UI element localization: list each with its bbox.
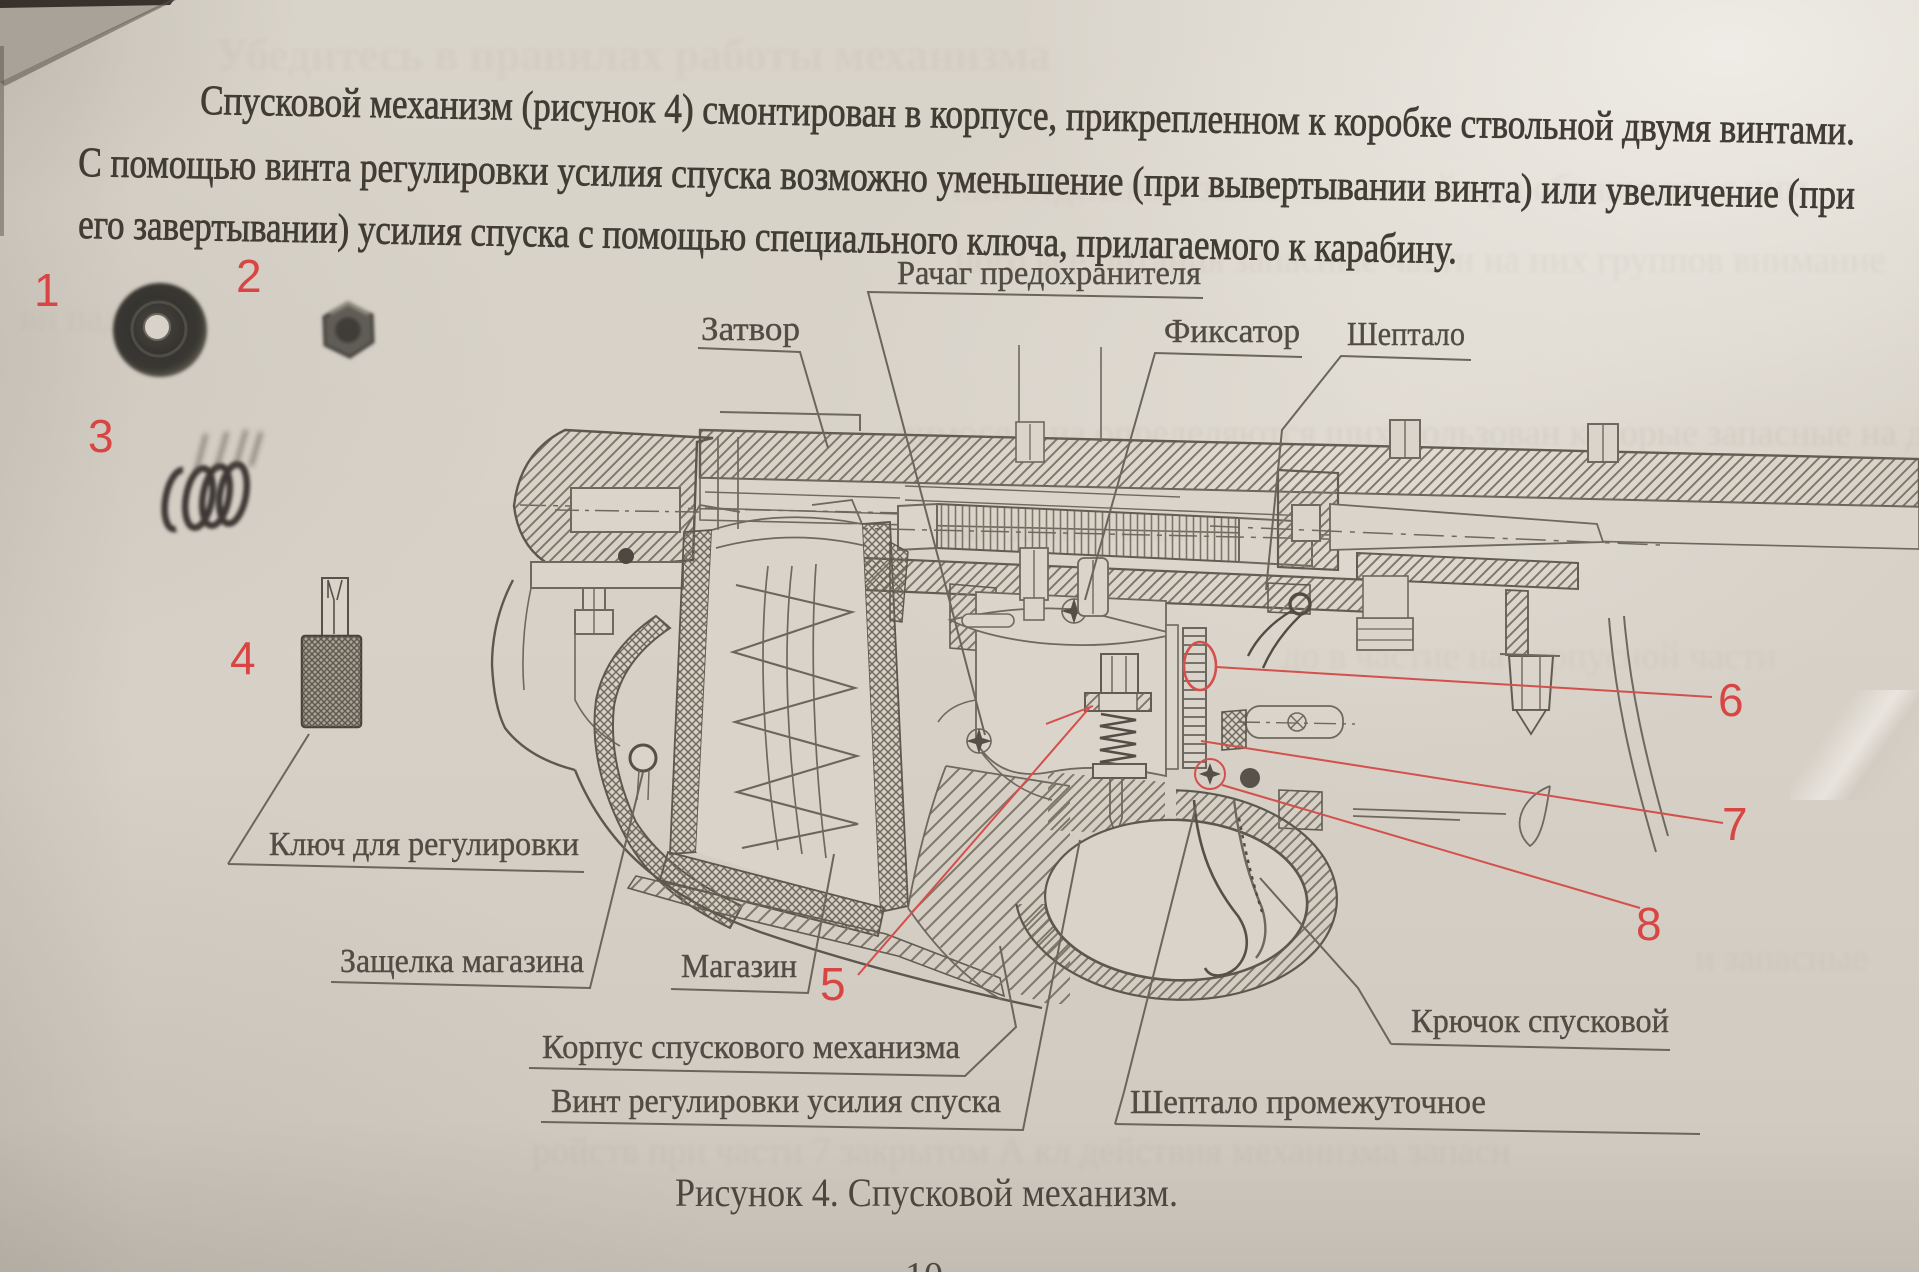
svg-text:Защелка магазина: Защелка магазина [340,943,584,980]
svg-text:10: 10 [905,1255,943,1272]
svg-text:2: 2 [236,250,262,302]
svg-text:Фиксатор: Фиксатор [1164,313,1300,350]
svg-text:7: 7 [1722,798,1748,850]
svg-text:Винт регулировки усилия спуска: Винт регулировки усилия спуска [551,1083,1001,1120]
svg-text:Шептало промежуточное: Шептало промежуточное [1130,1084,1486,1121]
svg-text:5: 5 [820,958,846,1010]
svg-text:6: 6 [1718,674,1744,726]
svg-text:Ключ для регулировки: Ключ для регулировки [269,826,579,863]
svg-text:Крючок спусковой: Крючок спусковой [1411,1003,1669,1040]
svg-text:Убедитесь в правилах работы ме: Убедитесь в правилах работы механизма [215,30,1051,80]
svg-text:Магазин: Магазин [681,948,797,985]
svg-text:Шептало: Шептало [1347,316,1465,353]
svg-text:Рисунок 4. Спусковой механизм.: Рисунок 4. Спусковой механизм. [675,1170,1178,1215]
svg-text:4: 4 [230,632,256,684]
svg-text:ройств при части 7 закрытом А: ройств при части 7 закрытом А кл действи… [532,1131,1511,1172]
svg-text:и запасные: и запасные [1695,938,1868,979]
svg-text:8: 8 [1636,898,1662,950]
svg-text:Спусковой механизм (рисунок 4): Спусковой механизм (рисунок 4) смонтиров… [200,78,1856,154]
svg-text:Затвор: Затвор [701,311,800,348]
svg-text:Рачаг предохранителя: Рачаг предохранителя [897,255,1201,292]
svg-text:3: 3 [88,410,114,462]
svg-text:Корпус спускового механизма: Корпус спускового механизма [542,1029,960,1066]
svg-text:его завертывании) усилия спуск: его завертывании) усилия спуска с помощь… [78,202,1458,273]
svg-text:1: 1 [34,264,60,316]
